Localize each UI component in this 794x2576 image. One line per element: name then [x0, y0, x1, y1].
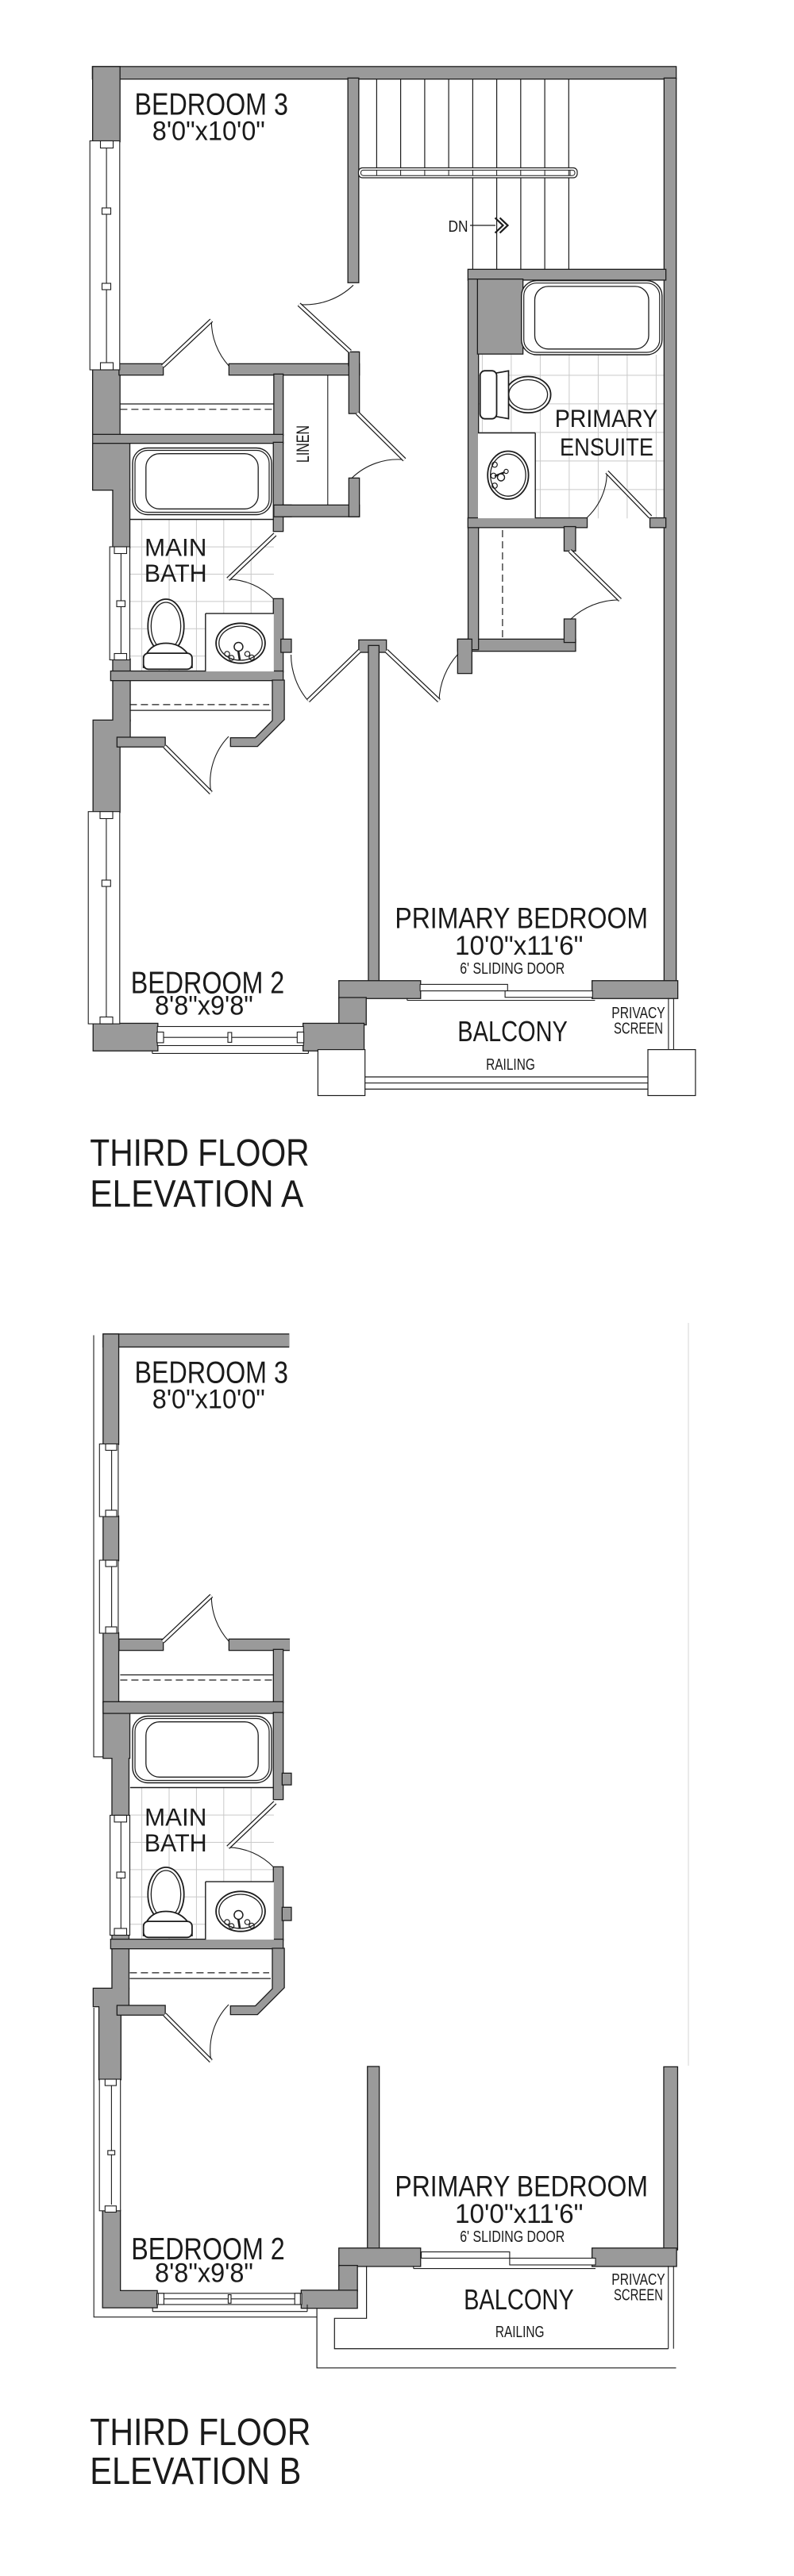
svg-text:BATH: BATH [145, 1828, 207, 1857]
svg-text:ELEVATION A: ELEVATION A [90, 1173, 303, 1215]
svg-text:10'0"x11'6": 10'0"x11'6" [455, 2199, 583, 2229]
svg-text:BALCONY: BALCONY [464, 2283, 574, 2316]
svg-text:THIRD FLOOR: THIRD FLOOR [90, 2412, 310, 2454]
svg-text:PRIMARY: PRIMARY [555, 404, 658, 433]
svg-text:ELEVATION B: ELEVATION B [90, 2451, 301, 2493]
svg-text:6' SLIDING DOOR: 6' SLIDING DOOR [460, 2228, 565, 2246]
svg-text:MAIN: MAIN [145, 1803, 207, 1832]
svg-text:SCREEN: SCREEN [614, 1021, 663, 1038]
svg-text:ENSUITE: ENSUITE [560, 433, 653, 461]
svg-text:DN: DN [449, 218, 468, 236]
svg-text:THIRD FLOOR: THIRD FLOOR [90, 1132, 309, 1175]
svg-text:BATH: BATH [145, 559, 207, 587]
svg-text:8'0"x10'0": 8'0"x10'0" [152, 1385, 265, 1415]
svg-text:SCREEN: SCREEN [614, 2287, 663, 2305]
svg-text:RAILING: RAILING [495, 2324, 545, 2341]
svg-text:BALCONY: BALCONY [457, 1015, 568, 1048]
svg-text:LINEN: LINEN [293, 425, 313, 463]
svg-text:PRIMARY BEDROOM: PRIMARY BEDROOM [395, 2170, 648, 2203]
svg-text:MAIN: MAIN [145, 533, 207, 562]
svg-text:PRIMARY BEDROOM: PRIMARY BEDROOM [395, 902, 648, 935]
svg-text:6' SLIDING DOOR: 6' SLIDING DOOR [460, 960, 565, 978]
svg-text:10'0"x11'6": 10'0"x11'6" [455, 931, 583, 961]
svg-text:RAILING: RAILING [486, 1056, 535, 1074]
svg-text:8'8"x9'8": 8'8"x9'8" [155, 991, 253, 1021]
svg-text:8'0"x10'0": 8'0"x10'0" [152, 117, 265, 147]
svg-text:8'8"x9'8": 8'8"x9'8" [155, 2258, 253, 2288]
